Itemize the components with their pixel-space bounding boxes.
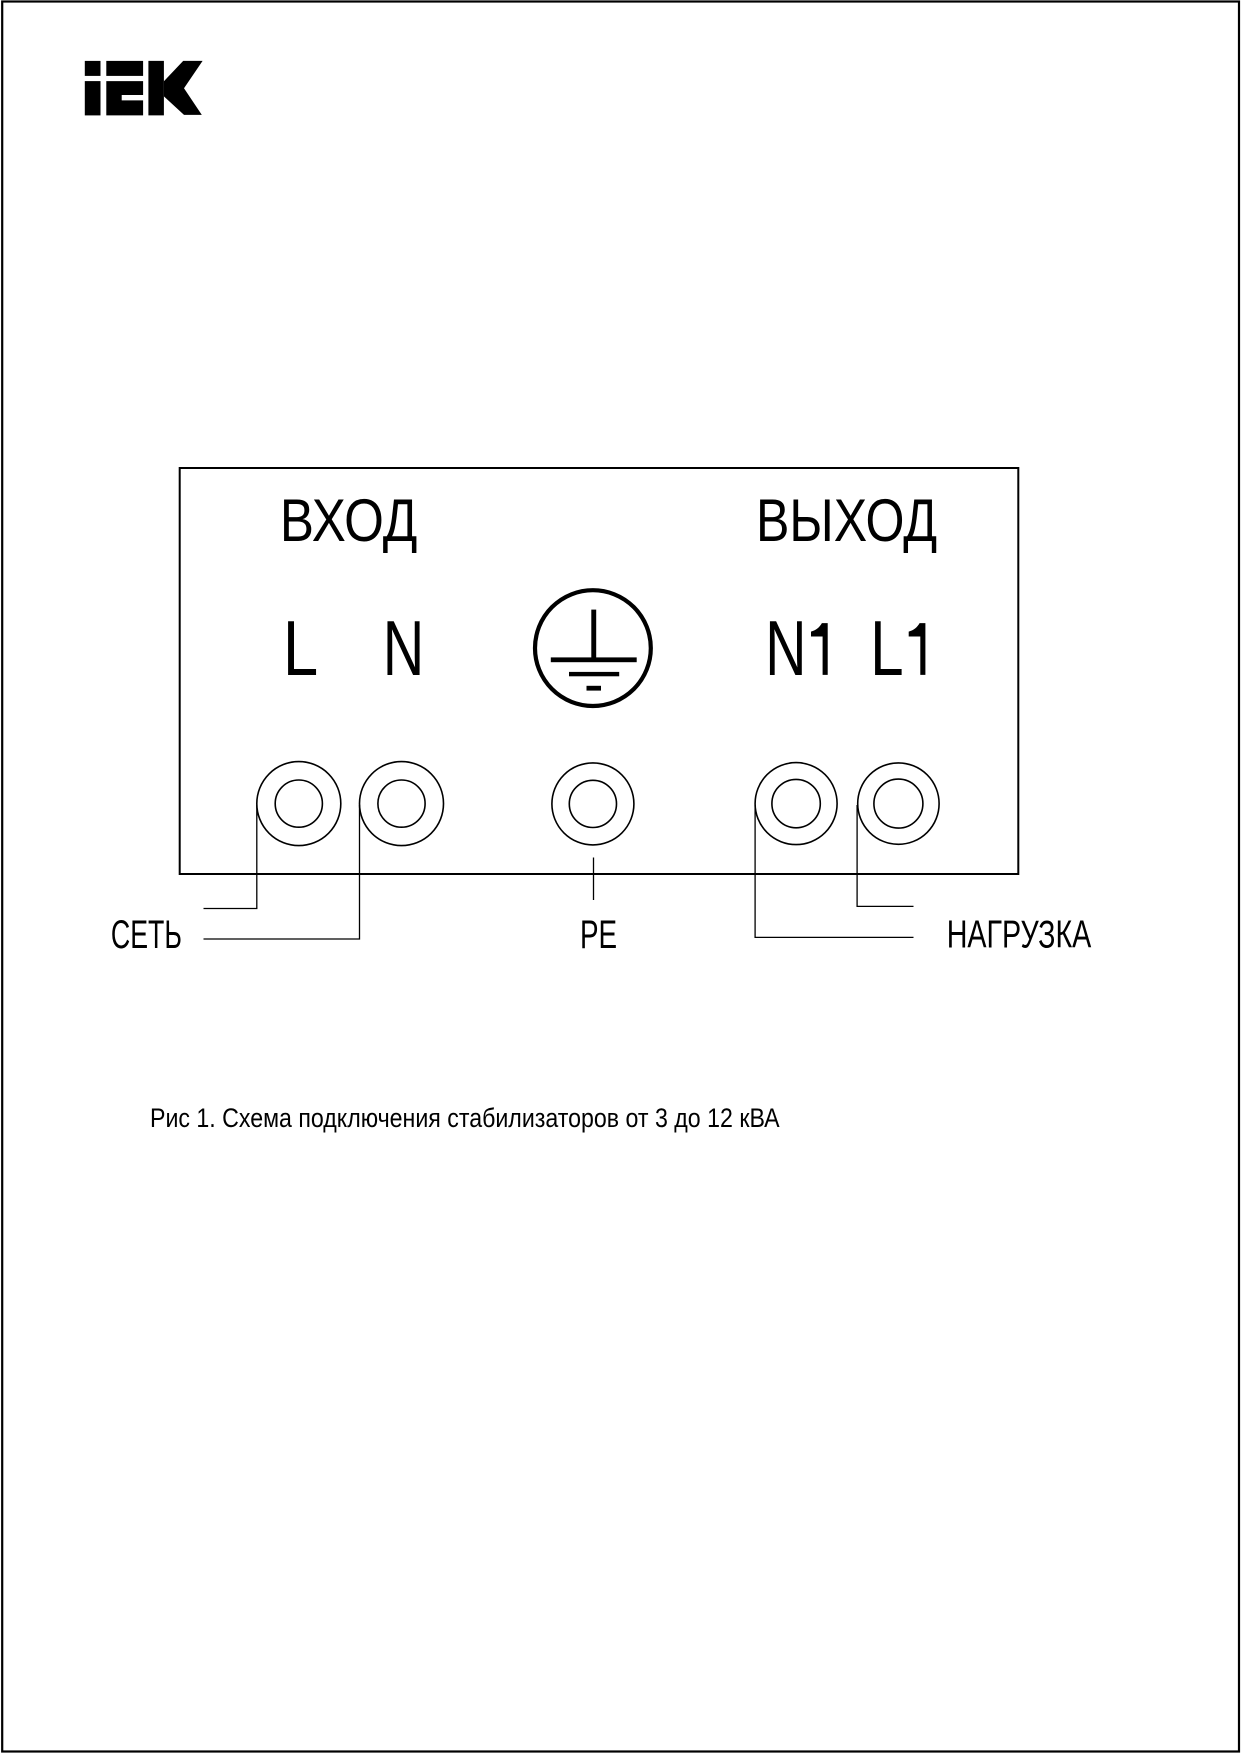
svg-text:ВЫХОД: ВЫХОД xyxy=(756,486,937,554)
svg-text:L: L xyxy=(870,606,904,692)
svg-text:СЕТЬ: СЕТЬ xyxy=(111,913,182,957)
svg-text:N: N xyxy=(765,606,806,692)
svg-text:N: N xyxy=(383,606,425,692)
svg-text:Рис 1. Схема подключения стаби: Рис 1. Схема подключения стабилизаторов … xyxy=(150,1103,780,1133)
svg-text:РЕ: РЕ xyxy=(580,913,617,957)
svg-text:L: L xyxy=(283,606,318,692)
svg-text:ВХОД: ВХОД xyxy=(280,486,418,554)
svg-text:НАГРУЗКА: НАГРУЗКА xyxy=(947,913,1092,956)
